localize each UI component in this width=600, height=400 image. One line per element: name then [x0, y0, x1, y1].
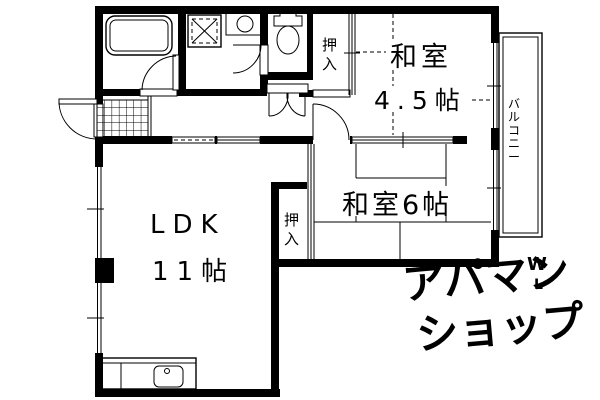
bath-door-leaf	[173, 55, 179, 90]
watermark-mark-w: W	[527, 254, 547, 275]
room-labels: 和室 4.5帖 和室6帖 LDK 11帖 押入 押入 バルコニー	[150, 36, 520, 287]
bathtub-rim	[110, 20, 168, 51]
wall-segment	[307, 14, 313, 72]
genkan-tile	[97, 100, 148, 137]
wall-segment	[95, 353, 103, 397]
wall-segment	[271, 182, 307, 189]
washitsu6-door-track	[313, 90, 350, 97]
floor-plan: アパマン ショップ W L	[0, 0, 600, 400]
watermark-mark-l: L	[534, 277, 543, 293]
closet-middle-label: 押入	[284, 211, 299, 248]
toilet-bowl	[277, 26, 299, 54]
washroom-door-opening	[260, 45, 268, 75]
wall-segment	[177, 89, 267, 96]
entrance-door-arc	[59, 101, 97, 139]
window-pillar	[95, 258, 114, 283]
wall-segment	[491, 128, 499, 150]
balcony-label: バルコニー	[508, 97, 520, 164]
wall-segment	[95, 6, 103, 96]
washbasin-bowl	[237, 16, 253, 32]
washitsu6-label: 和室6帖	[342, 190, 452, 221]
washroom-door-arc	[233, 45, 261, 73]
ldk-size-label: 11帖	[152, 257, 235, 287]
closet-upper-label: 押入	[322, 36, 337, 73]
washitsu45-name-label: 和室	[390, 42, 452, 73]
hall-closet-left-arc	[269, 93, 288, 116]
kitchen-faucet	[165, 369, 170, 374]
wall-segment	[453, 136, 467, 144]
bathtub	[106, 16, 172, 55]
washitsu6-door-arc	[313, 104, 349, 140]
bath-door-arc	[142, 56, 176, 90]
bath-door-opening	[140, 89, 177, 96]
entrance-door-leaf	[59, 99, 97, 104]
wall-segment	[95, 389, 280, 397]
wall-segment	[95, 6, 499, 14]
hall-closet-track	[267, 84, 308, 93]
ldk-hall-opening	[172, 137, 215, 143]
balcony	[499, 33, 542, 237]
ldk-name-label: LDK	[150, 210, 226, 240]
wall-segment	[95, 89, 140, 96]
wall-segment	[260, 136, 313, 144]
toilet-tank	[274, 13, 302, 26]
balcony-outer-rail	[499, 33, 542, 237]
wall-segment	[271, 259, 499, 267]
wall-segment	[491, 6, 499, 43]
washitsu45-size-label: 4.5帖	[374, 86, 467, 115]
wall-segment	[271, 182, 279, 397]
